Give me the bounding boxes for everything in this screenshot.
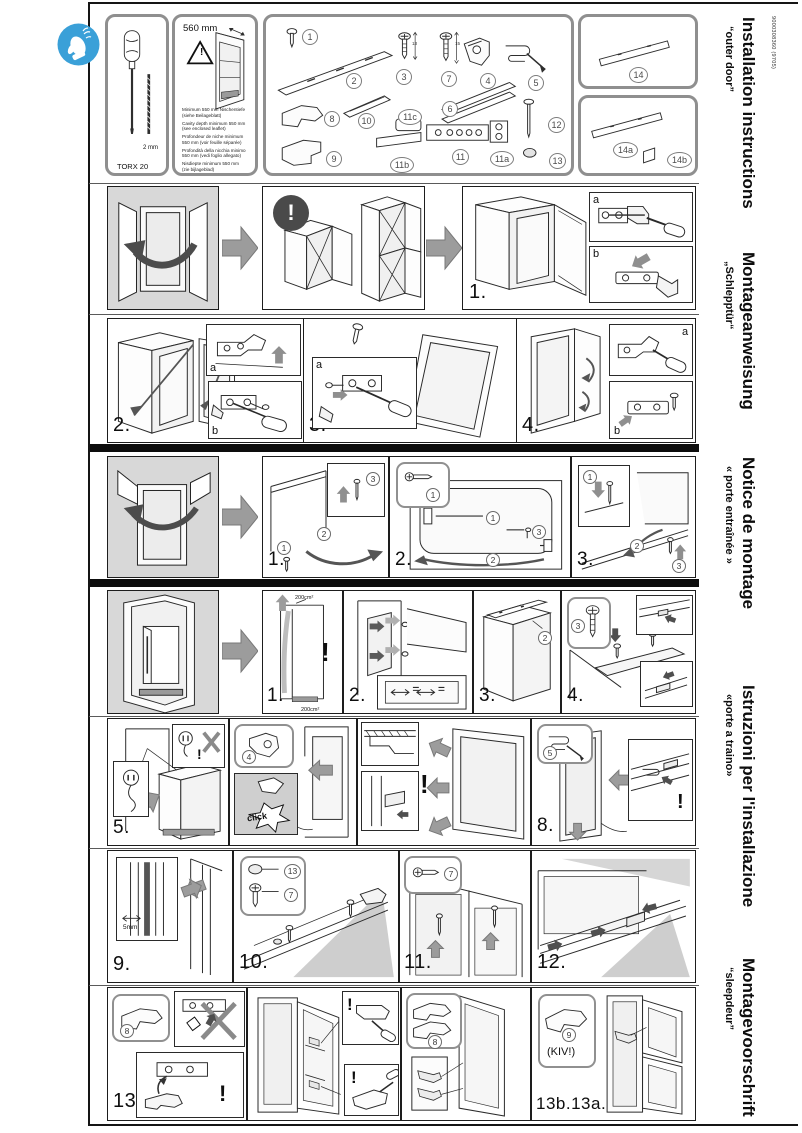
rail-hook-detail (636, 595, 693, 635)
tool-name-label: TORX 20 (117, 162, 148, 171)
step-number: 2. (395, 549, 412, 571)
lang-title-nl: Montagevoorschrift (738, 958, 758, 1133)
step-number: 1. (267, 685, 284, 707)
step-door-2-panel: 2. 1 1 3 2 (389, 456, 571, 578)
bracket-mount-art (137, 1053, 243, 1117)
part-9-callout: 9 (KIV!) (538, 994, 596, 1068)
callout-2: 2 (317, 527, 331, 541)
door-swing-art (108, 187, 218, 309)
warning-mark: ! (420, 771, 429, 797)
bracket-position-panel: ! ! (247, 987, 401, 1121)
part-label-2: 2 (346, 73, 362, 89)
step-number: 10. (239, 951, 268, 974)
bracket-mount-detail: ! (136, 1052, 244, 1118)
callout-9: 9 (562, 1028, 576, 1042)
step1-detail-a: a (589, 192, 693, 242)
warning-mark: ! (219, 1083, 226, 1105)
bit-size-label: 2 mm (143, 145, 158, 151)
step-main-13ba-panel: 13b.13a. 9 (KIV!) (531, 987, 696, 1121)
tall-cabinet-art (108, 591, 218, 713)
lang-subtitle-it: «porte a traino» (723, 685, 735, 945)
row-separator (89, 716, 699, 717)
callout-8: 8 (120, 1024, 134, 1038)
step-number: 12. (537, 951, 566, 974)
hinge-screw-art (590, 193, 692, 241)
flow-arrow-right-icon (222, 494, 258, 540)
callout-8: 8 (428, 1035, 442, 1049)
callout-7: 7 (284, 888, 298, 902)
step-outer-1-panel: 1. a b (462, 186, 696, 310)
plate-screws-art (313, 358, 416, 428)
section-divider-bar (90, 444, 699, 452)
step-main-3-panel: 3. 2 (473, 590, 561, 714)
row-separator (89, 848, 699, 849)
clip-rail-detail: ! (628, 739, 693, 821)
kiv-label: (KIV!) (547, 1046, 575, 1058)
warning-mark: ! (347, 996, 353, 1013)
part-label-4: 4 (480, 73, 496, 89)
step4-detail-b: b (609, 381, 693, 439)
part-14ab-panel: 14a 14b (578, 95, 698, 176)
wrong-mount-art (175, 992, 244, 1046)
warning-mark: ! (351, 1069, 357, 1086)
warning-mark: ! (321, 639, 330, 665)
step-number: 3. (577, 549, 594, 571)
step-outer-2-panel: 2. a b (107, 318, 304, 443)
part-5-callout: 5 (537, 724, 593, 764)
part-8-pair-callout: 8 (406, 993, 462, 1049)
ceiling-gap-art (362, 723, 418, 765)
part-label-11b: 11b (390, 157, 414, 173)
bracket-screwdriver-art (610, 325, 692, 375)
parts-overview-panel: 13 15 1 2 3 7 4 5 8 10 11c 6 9 11b 11 11… (263, 14, 574, 176)
frame-left-line (88, 2, 90, 1126)
warning-mark: ! (197, 747, 202, 761)
step-door-1-panel: 1. 1 2 3 (262, 456, 389, 578)
part-label-11: 11 (452, 149, 469, 165)
step-door1-detail: 3 (327, 463, 385, 517)
niche-width-label: 560 mm (183, 23, 217, 34)
screw-horizontal-art (398, 464, 448, 506)
detail-letter: a (210, 363, 216, 374)
callout-3: 3 (672, 559, 686, 573)
part-label-7: 7 (441, 71, 457, 87)
gap-dimension-label: 5mm (123, 924, 137, 931)
step-number: 2. (349, 685, 366, 707)
lower-bracket-detail: ! (344, 1064, 399, 1116)
rail-end-art (641, 662, 692, 706)
sidebar-title-fr: Notice de montage « porte entraînée » (720, 457, 758, 677)
step-door-3-panel: 3. 1 2 3 (571, 456, 696, 578)
sidebar-title-it: Istruzioni per l'installazione «porte a … (720, 685, 758, 945)
callout-5: 5 (543, 746, 557, 760)
door-panel-overview (107, 456, 219, 578)
wrong-mount-detail (174, 991, 245, 1047)
detail-letter: a (316, 360, 322, 371)
step-number: 11. (404, 951, 432, 974)
warning-triangle-mark: ! (200, 48, 203, 58)
step-number: 3. (479, 685, 496, 707)
alignment-panel: ! (357, 718, 531, 846)
step-main-12-panel: 12. (531, 850, 696, 983)
instruction-sheet-page: 9000308360 (9705) Installation instructi… (0, 0, 802, 1133)
step-number: 13b.13a. (536, 1094, 606, 1114)
niche-notes: Minimum 550 mm Nischentiefe(siehe Beilag… (182, 107, 256, 175)
sidebar-title-de: Montageanweisung „Schlepptür“ (720, 252, 758, 472)
bracket-remove-art (590, 247, 692, 302)
ceiling-detail (361, 722, 419, 766)
step3-detail-a: a (312, 357, 417, 429)
note-nl: Nisdiepte minimum 550 mm(zie bijlageblad… (182, 161, 256, 172)
flow-arrow-right-icon (222, 628, 258, 674)
flow-arrow-right-icon (426, 225, 462, 271)
fastener-callout: 1 (396, 462, 450, 508)
part-label-14b: 14b (667, 152, 692, 168)
screw7-length-dim: 15 (455, 41, 460, 46)
step-number: 9. (113, 953, 131, 976)
screw3-length-dim: 13 (412, 41, 417, 46)
gap-detail: 5mm (116, 857, 178, 941)
lang-title-fr: Notice de montage (738, 457, 758, 677)
row-separator (89, 183, 699, 184)
row-separator (89, 985, 699, 986)
step1-detail-b: b (589, 246, 693, 303)
part-label-1: 1 (302, 29, 318, 45)
part-label-6: 6 (442, 101, 458, 117)
sidebar-title-en: Installation instructions “outer door” (720, 17, 758, 277)
gloves-icon-art (56, 22, 101, 67)
warning-mark: ! (677, 792, 684, 812)
document-number: 9000308360 (9705) (770, 16, 776, 69)
part-label-11c: 11c (398, 109, 422, 125)
hinge-side-art (362, 772, 418, 830)
part-label-5: 5 (528, 75, 544, 91)
callout-3: 3 (532, 525, 546, 539)
section-divider-bar (90, 579, 699, 587)
step-number: 1. (469, 281, 487, 304)
step-main-9-panel: 9. 5mm (107, 850, 233, 983)
note-de: Minimum 550 mm Nischentiefe(siehe Beilag… (182, 107, 256, 118)
part-label-3: 3 (396, 69, 412, 85)
bracket-pin-art (610, 382, 692, 438)
callout-7: 7 (444, 867, 458, 881)
note-fr: Profondeur de niche minimum550 mm (voir … (182, 134, 256, 145)
lang-subtitle-de: „Schlepptür“ (723, 252, 735, 472)
attention-mark: ! (287, 202, 294, 224)
step-main-5-panel: 5. ! (107, 718, 229, 846)
part-label-9: 9 (326, 151, 342, 167)
callout-3: 3 (366, 472, 380, 486)
step-number: 2. (113, 414, 131, 437)
vent-area-top-label: 200cm² (295, 595, 313, 601)
frame-top-line (88, 2, 798, 4)
step2-detail-a: a (206, 324, 301, 376)
step-outer-3-panel: 3. a (303, 318, 517, 443)
tools-panel: 2 mm TORX 20 (105, 14, 169, 176)
callout-1: 1 (583, 470, 597, 484)
part-label-8: 8 (324, 111, 340, 127)
fastener-callout: 13 7 (240, 856, 306, 916)
callout-2: 2 (486, 553, 500, 567)
detail-letter: b (212, 426, 218, 437)
lang-title-de: Montageanweisung (738, 252, 758, 472)
callout-1: 1 (486, 511, 500, 525)
part-14-panel: 14 (578, 14, 698, 89)
note-it: Profondità della nicchia minimo550 mm (v… (182, 148, 256, 159)
lang-title-en: Installation instructions (738, 17, 758, 277)
lang-subtitle-en: “outer door” (723, 17, 735, 277)
bracket-lift-art (207, 325, 300, 375)
part-label-14: 14 (629, 67, 648, 83)
brackets-overview-panel: 8 (401, 987, 531, 1121)
step-main-8-panel: 8. 5 ! (531, 718, 696, 846)
step-main-1-panel: 200cm² 200cm² ! 1. (262, 590, 343, 714)
fastener-callout: 3 (567, 597, 611, 649)
step-door3-detail: 1 (578, 465, 630, 527)
plug-route-detail (113, 761, 149, 817)
appliance-type-warning-panel: ! (262, 186, 425, 310)
built-in-overview-panel (107, 590, 219, 714)
click-star-art (235, 774, 297, 834)
sidebar-title-nl: Montagevoorschrift “sleepdeur” (720, 958, 758, 1133)
step4-detail-a: a (609, 324, 693, 376)
detail-letter: b (614, 426, 620, 437)
step-number: 4. (522, 414, 540, 437)
callout-13: 13 (284, 864, 301, 879)
step-number: 5. (113, 817, 130, 839)
wear-gloves-icon (56, 22, 101, 67)
lang-subtitle-nl: “sleepdeur” (723, 958, 735, 1133)
callout-1: 1 (277, 541, 291, 555)
door-panel-swing-art (108, 457, 218, 577)
frame-bottom-line (88, 1124, 798, 1126)
step-main-4-panel: 4. 3 (561, 590, 696, 714)
part-label-13: 13 (549, 153, 566, 169)
part-label-14a: 14a (613, 142, 638, 158)
part-label-10: 10 (358, 113, 375, 129)
callout-3: 3 (571, 619, 585, 633)
callout-2: 2 (538, 631, 552, 645)
hinge-side-detail (361, 771, 419, 831)
attention-icon: ! (273, 195, 309, 231)
step-main-10-panel: 10. 13 7 (233, 850, 399, 983)
part-label-11a: 11a (490, 151, 514, 167)
part-label-12: 12 (548, 117, 565, 133)
rail-end-detail (640, 661, 693, 707)
step-main-11-panel: 11. 7 (399, 850, 531, 983)
click-detail: click (234, 773, 298, 835)
step-number: 4. (567, 685, 584, 707)
detail-letter: a (682, 327, 688, 338)
step-main-13-panel: 13. 8 ! (107, 987, 247, 1121)
plug-warning-detail: ! (172, 724, 225, 768)
step-main-2-panel: 2. (343, 590, 473, 714)
part-8-callout: 8 (112, 994, 170, 1042)
flow-arrow-right-icon (222, 225, 258, 271)
lang-subtitle-fr: « porte entraînée » (723, 457, 735, 677)
power-plug-art (114, 762, 148, 816)
rail-hook-art (637, 596, 692, 634)
part-4-callout: 4 (234, 724, 294, 768)
hinge-unscrew-art (209, 382, 301, 438)
detail-letter: b (593, 249, 599, 260)
step-number: 8. (537, 815, 554, 837)
fastener-callout: 7 (404, 856, 462, 894)
vent-area-bottom-label: 200cm² (301, 707, 319, 713)
callout-4: 4 (242, 750, 256, 764)
lang-title-it: Istruzioni per l'installazione (738, 685, 758, 945)
step-main-67-panel: 6. 7. 4 click (229, 718, 357, 846)
row-separator (89, 314, 699, 315)
upper-bracket-detail: ! (342, 991, 399, 1045)
note-en: Cavity depth minimum 550 mm(see enclosed… (182, 121, 256, 132)
detail-letter: a (593, 195, 599, 206)
callout-1: 1 (426, 488, 440, 502)
door-swing-overview-panel (107, 186, 219, 310)
step2-detail-b: b (208, 381, 302, 439)
step-outer-4-panel: 4. a b (516, 318, 696, 443)
callout-2: 2 (630, 539, 644, 553)
niche-dimension-panel: 560 mm ! Minimum 550 mm Nischentiefe(sie… (172, 14, 258, 176)
